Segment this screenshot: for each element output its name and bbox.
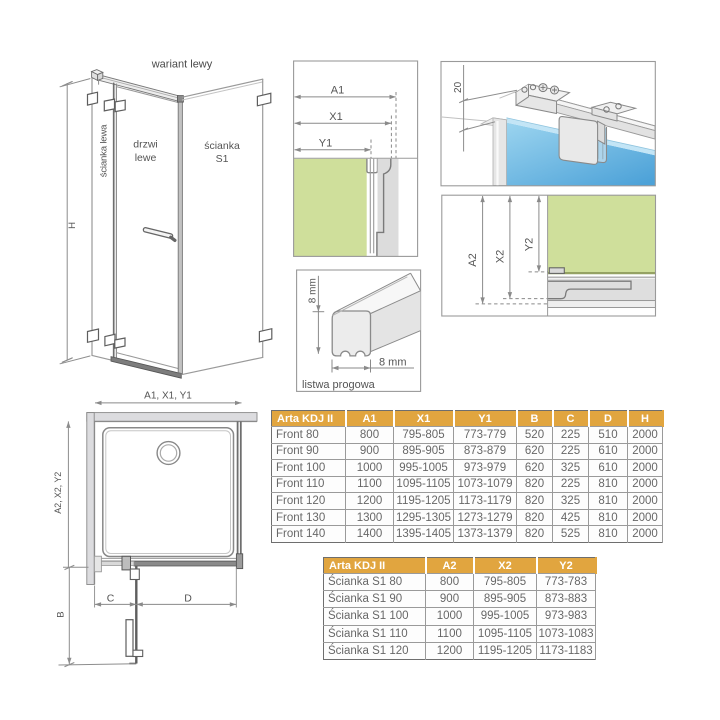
svg-text:S1: S1 <box>216 153 229 165</box>
svg-text:A1, X1, Y1: A1, X1, Y1 <box>144 391 192 402</box>
svg-text:A2, X2, Y2: A2, X2, Y2 <box>53 472 63 514</box>
svg-text:8 mm: 8 mm <box>379 357 407 369</box>
svg-text:wariant lewy: wariant lewy <box>151 59 213 71</box>
svg-text:D: D <box>184 593 192 605</box>
svg-text:ścianka lewa: ścianka lewa <box>99 124 110 177</box>
svg-text:drzwi: drzwi <box>133 139 158 151</box>
svg-text:listwa progowa: listwa progowa <box>302 379 376 391</box>
svg-text:20: 20 <box>453 81 464 93</box>
svg-text:8 mm: 8 mm <box>307 278 318 303</box>
svg-text:C: C <box>107 593 115 605</box>
svg-text:ścianka: ścianka <box>204 140 240 152</box>
svg-text:A1: A1 <box>331 85 344 97</box>
svg-text:Y1: Y1 <box>319 137 332 149</box>
svg-text:lewe: lewe <box>135 152 157 164</box>
svg-text:X2: X2 <box>494 250 506 263</box>
svg-text:A2: A2 <box>467 253 479 266</box>
svg-text:H: H <box>67 222 78 229</box>
svg-text:Y2: Y2 <box>523 238 535 251</box>
svg-text:B: B <box>55 611 66 617</box>
svg-text:X1: X1 <box>329 111 342 123</box>
